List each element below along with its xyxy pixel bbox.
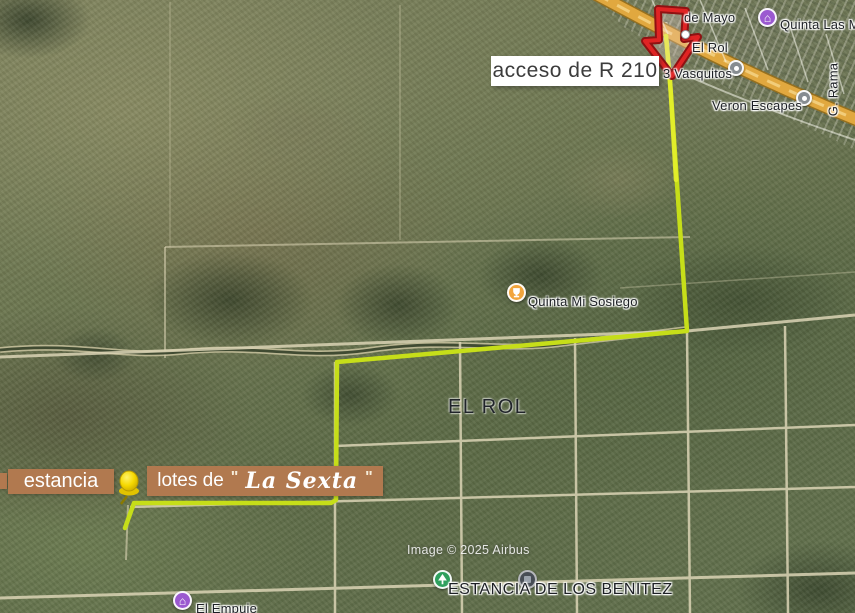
place-label-tres-vasquitos[interactable]: 3 Vasquitos	[663, 66, 732, 81]
poi-marker-el-empuje[interactable]: ⌂	[173, 591, 192, 610]
place-label-de-mayo[interactable]: de Mayo	[684, 10, 735, 25]
lotes-name-label: La Sexta	[245, 468, 358, 494]
callout-edge-sliver	[0, 473, 7, 489]
callout-estancia[interactable]: estancia	[8, 469, 114, 494]
poi-dot-icon	[734, 66, 739, 71]
pushpin-placemark[interactable]	[114, 470, 146, 506]
map-overlay-graphics	[0, 0, 855, 613]
place-label-quinta-mi-sosiego[interactable]: Quinta Mi Sosiego	[528, 294, 638, 309]
map-canvas[interactable]: ⌂ ⌂ de Mayo Quinta Las Mora El Rol 3 Vas…	[0, 0, 855, 613]
callout-lotes-la-sexta[interactable]: lotes de " La Sexta "	[147, 466, 383, 496]
poi-dot-icon	[802, 96, 807, 101]
area-label-el-rol[interactable]: EL ROL	[448, 396, 527, 419]
callout-acceso-r210[interactable]: acceso de R 210	[491, 56, 659, 86]
place-label-veron-escapes[interactable]: Veron Escapes	[712, 98, 802, 113]
place-label-el-empuje[interactable]: El Empuje	[196, 601, 257, 613]
lodging-icon: ⌂	[179, 595, 186, 607]
estancia-label: estancia	[24, 470, 99, 493]
place-label-el-rol[interactable]: El Rol	[692, 40, 728, 55]
open-quote: "	[231, 469, 239, 487]
lodging-icon: ⌂	[764, 12, 771, 24]
poi-marker-quinta-mi-sosiego[interactable]	[507, 283, 526, 302]
route-polyline[interactable]	[125, 36, 687, 528]
poi-marker-quinta-las-moras[interactable]: ⌂	[758, 8, 777, 27]
lotes-prefix-label: lotes de	[157, 470, 224, 492]
close-quote: "	[365, 469, 373, 487]
imagery-attribution: Image © 2025 Airbus	[407, 543, 530, 557]
acceso-label: acceso de R 210	[492, 59, 657, 83]
place-label-estancia-benitez[interactable]: ESTANCIA DE LOS BENITEZ	[448, 581, 673, 599]
pushpin-icon	[114, 470, 146, 506]
trophy-icon	[511, 287, 522, 298]
tree-icon	[437, 574, 448, 586]
place-label-quinta-las-moras[interactable]: Quinta Las Mora	[780, 17, 855, 32]
street-label-g-rama[interactable]: G. Rama	[826, 57, 841, 123]
road-point-marker[interactable]	[681, 30, 690, 39]
